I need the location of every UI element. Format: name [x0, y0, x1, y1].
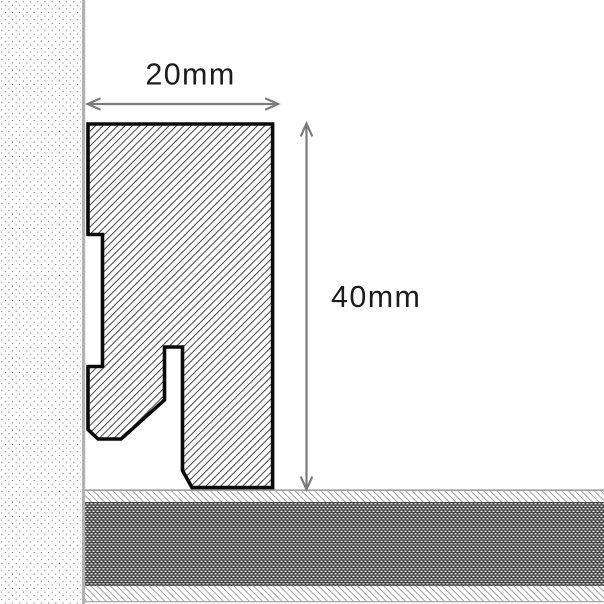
- svg-text:40mm: 40mm: [331, 280, 421, 314]
- svg-text:20mm: 20mm: [145, 58, 235, 92]
